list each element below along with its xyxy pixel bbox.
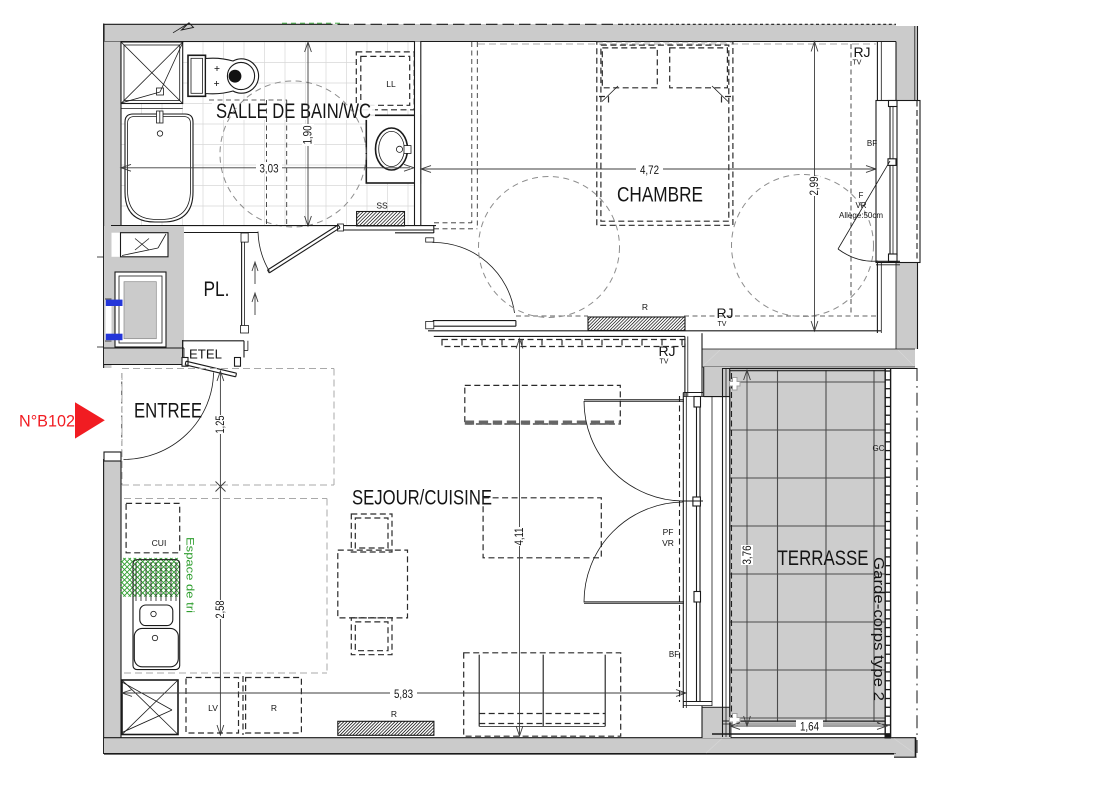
svg-text:PF: PF	[663, 527, 674, 537]
svg-text:GC: GC	[873, 444, 885, 453]
svg-text:SS: SS	[376, 201, 388, 211]
svg-text:N°B102: N°B102	[19, 412, 75, 431]
svg-text:TV: TV	[853, 60, 862, 67]
svg-text:PL.: PL.	[204, 278, 230, 301]
svg-text:VR: VR	[662, 538, 674, 548]
svg-text:2,58: 2,58	[215, 601, 227, 619]
svg-text:RJ: RJ	[658, 343, 675, 359]
svg-text:3,03: 3,03	[260, 164, 279, 176]
svg-text:ETEL: ETEL	[189, 347, 222, 362]
svg-text:CUI: CUI	[152, 538, 167, 548]
svg-text:RJ: RJ	[853, 44, 870, 60]
svg-text:CHAMBRE: CHAMBRE	[617, 184, 703, 207]
svg-text:4,11: 4,11	[514, 528, 526, 546]
svg-text:5,83: 5,83	[394, 689, 413, 701]
svg-text:BF: BF	[867, 139, 877, 148]
svg-text:3,76: 3,76	[742, 546, 754, 565]
svg-text:R: R	[642, 302, 648, 312]
svg-text:BF: BF	[669, 650, 679, 659]
svg-text:LV: LV	[208, 703, 218, 713]
svg-text:ENTREE: ENTREE	[134, 400, 202, 423]
svg-text:R: R	[271, 703, 277, 713]
svg-text:Allège:50cm: Allège:50cm	[839, 211, 883, 220]
svg-text:1,64: 1,64	[800, 722, 820, 734]
svg-text:VR: VR	[855, 201, 866, 210]
svg-text:TERRASSE: TERRASSE	[778, 547, 869, 570]
svg-text:1,90: 1,90	[303, 126, 315, 145]
svg-text:2,99: 2,99	[809, 177, 821, 196]
svg-text:TV: TV	[718, 321, 727, 328]
svg-text:SEJOUR/CUISINE: SEJOUR/CUISINE	[352, 487, 492, 510]
svg-text:R: R	[391, 709, 397, 719]
svg-text:Espace de tri: Espace de tri	[184, 537, 196, 613]
svg-text:SALLE DE BAIN/WC: SALLE DE BAIN/WC	[216, 100, 371, 123]
svg-text:4,72: 4,72	[640, 165, 659, 177]
svg-text:RJ: RJ	[716, 305, 733, 321]
svg-text:1,25: 1,25	[215, 416, 227, 434]
svg-text:Garde-corps type 2: Garde-corps type 2	[870, 557, 887, 701]
svg-text:F: F	[859, 191, 864, 200]
svg-text:LL: LL	[386, 79, 396, 89]
svg-text:TV: TV	[660, 359, 669, 366]
